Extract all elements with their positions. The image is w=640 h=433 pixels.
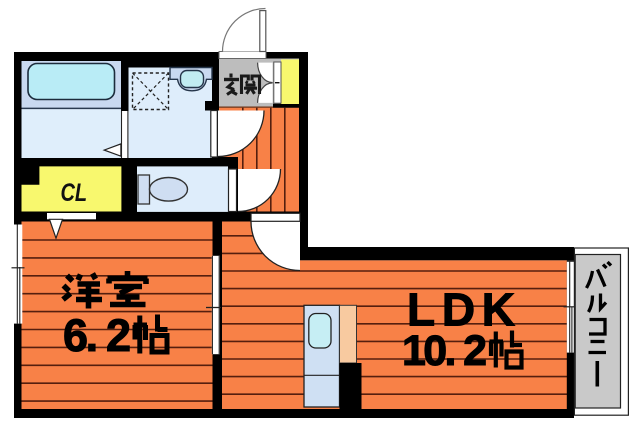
svg-text:10. 2: 10. 2 <box>402 327 487 375</box>
svg-text:CL: CL <box>61 179 88 207</box>
svg-text:6. 2: 6. 2 <box>63 310 131 361</box>
